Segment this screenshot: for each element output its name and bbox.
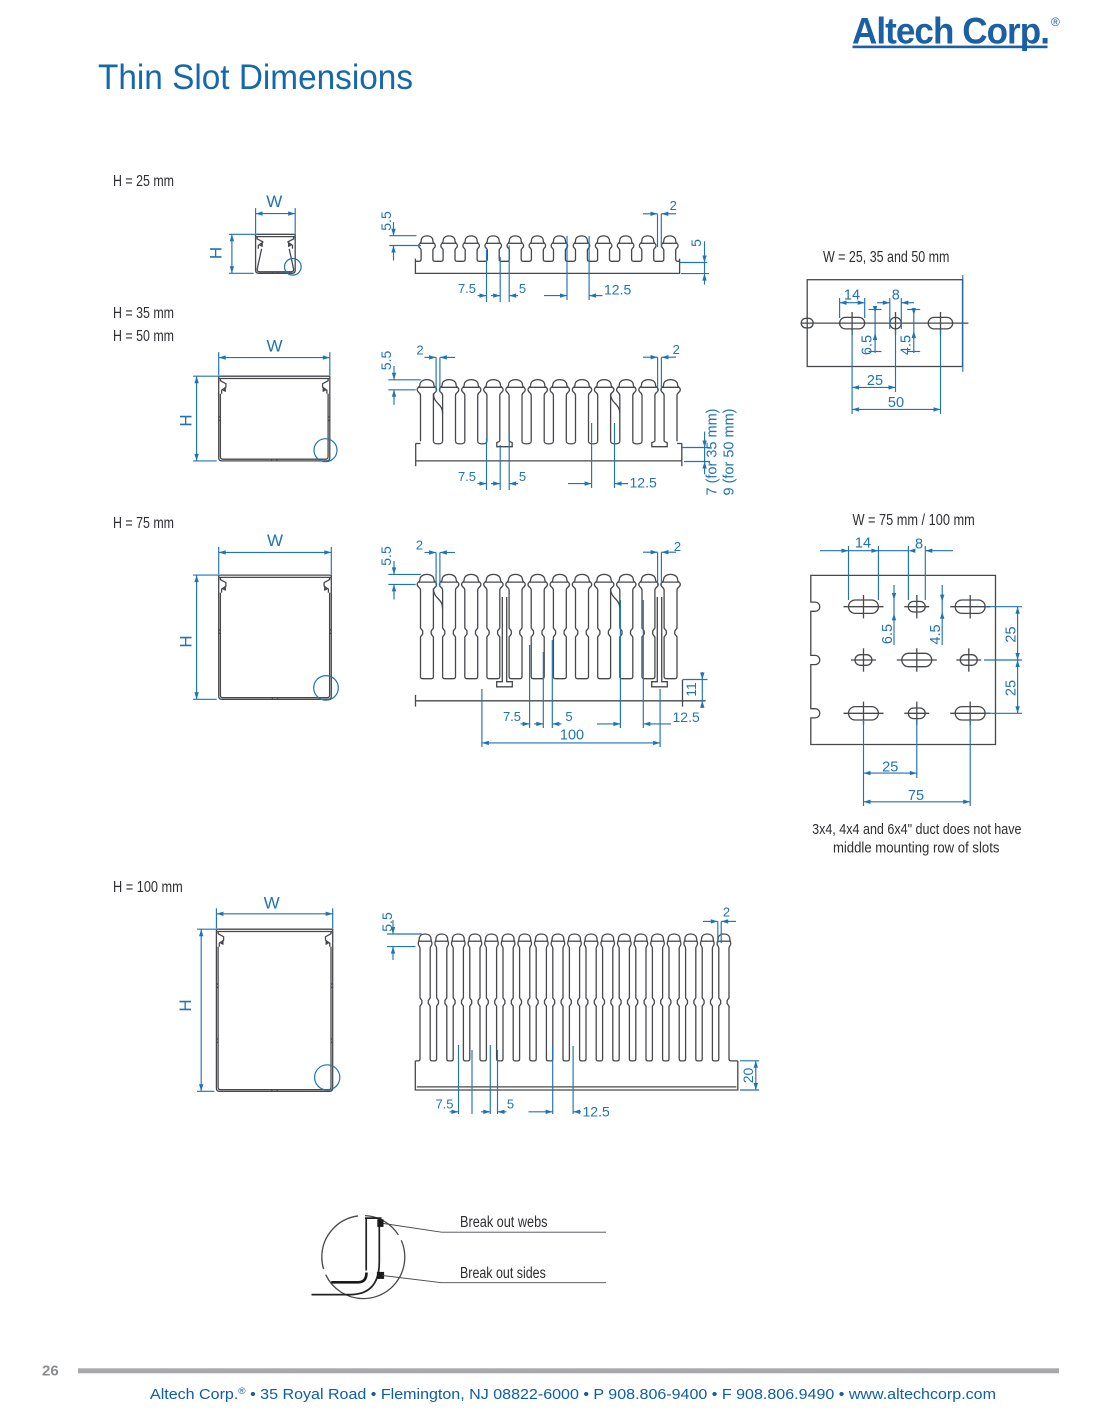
svg-text:Thin Slot Dimensions: Thin Slot Dimensions — [98, 58, 413, 97]
svg-text:12.5: 12.5 — [673, 709, 700, 725]
svg-text:8: 8 — [892, 287, 900, 303]
svg-text:2: 2 — [723, 905, 730, 920]
svg-text:H: H — [177, 414, 196, 426]
svg-text:4.5: 4.5 — [928, 624, 944, 644]
svg-text:6.5: 6.5 — [860, 335, 876, 355]
svg-text:6.5: 6.5 — [880, 624, 896, 644]
svg-text:W: W — [266, 192, 282, 211]
svg-text:2: 2 — [416, 538, 423, 553]
svg-text:12.5: 12.5 — [630, 475, 657, 491]
svg-text:Altech Corp.® • 35 Royal Road: Altech Corp.® • 35 Royal Road • Flemingt… — [150, 1386, 996, 1403]
svg-text:Altech Corp.: Altech Corp. — [852, 10, 1049, 52]
svg-text:4.5: 4.5 — [899, 335, 915, 355]
svg-text:H: H — [177, 635, 196, 647]
svg-text:2: 2 — [674, 539, 681, 554]
svg-text:W: W — [264, 894, 280, 913]
svg-text:8: 8 — [915, 537, 923, 553]
svg-text:2: 2 — [673, 342, 680, 357]
svg-text:7.5: 7.5 — [503, 709, 521, 724]
svg-text:2: 2 — [416, 343, 423, 358]
svg-text:12.5: 12.5 — [583, 1104, 610, 1120]
svg-text:7 (for 35 mm): 7 (for 35 mm) — [705, 408, 721, 495]
svg-text:5.5: 5.5 — [378, 546, 394, 566]
svg-text:14: 14 — [844, 287, 860, 303]
svg-text:7.5: 7.5 — [458, 281, 476, 296]
svg-text:20: 20 — [740, 1068, 756, 1084]
svg-text:middle mounting row of slots: middle mounting row of slots — [833, 840, 1000, 857]
svg-text:25: 25 — [1004, 680, 1020, 696]
svg-text:®: ® — [1051, 15, 1060, 29]
svg-text:5.5: 5.5 — [379, 912, 395, 932]
svg-text:3x4, 4x4 and 6x4" duct does no: 3x4, 4x4 and 6x4" duct does not have — [812, 821, 1021, 838]
svg-text:14: 14 — [855, 535, 871, 551]
svg-text:5: 5 — [519, 469, 526, 484]
svg-text:26: 26 — [42, 1363, 59, 1380]
svg-text:12.5: 12.5 — [604, 282, 631, 298]
svg-text:W: W — [267, 531, 283, 550]
svg-text:75: 75 — [908, 788, 924, 804]
svg-text:9 (for 50 mm): 9 (for 50 mm) — [722, 408, 738, 495]
svg-text:W = 75 mm / 100 mm: W = 75 mm / 100 mm — [852, 512, 974, 529]
svg-text:H = 75 mm: H = 75 mm — [113, 515, 174, 532]
svg-text:100: 100 — [560, 728, 584, 744]
svg-text:H = 100 mm: H = 100 mm — [113, 879, 183, 896]
svg-text:H: H — [176, 999, 195, 1011]
svg-text:7.5: 7.5 — [435, 1097, 453, 1112]
svg-text:5: 5 — [519, 281, 526, 296]
svg-text:5.5: 5.5 — [378, 211, 394, 231]
svg-text:25: 25 — [1004, 626, 1020, 642]
svg-text:H = 25 mm: H = 25 mm — [113, 173, 174, 190]
svg-text:H: H — [207, 247, 226, 259]
svg-text:W: W — [266, 337, 282, 356]
svg-text:H = 50 mm: H = 50 mm — [113, 328, 174, 345]
svg-text:25: 25 — [867, 373, 883, 389]
svg-text:5: 5 — [507, 1097, 514, 1112]
svg-text:5.5: 5.5 — [378, 351, 394, 371]
svg-text:W = 25, 35 and 50 mm: W = 25, 35 and 50 mm — [823, 249, 950, 266]
svg-text:H = 35 mm: H = 35 mm — [113, 305, 174, 322]
svg-text:Break out sides: Break out sides — [460, 1265, 546, 1282]
svg-text:Break out webs: Break out webs — [460, 1214, 548, 1231]
svg-text:50: 50 — [888, 395, 904, 411]
svg-text:2: 2 — [670, 198, 677, 213]
svg-text:25: 25 — [882, 760, 898, 776]
svg-text:11: 11 — [683, 682, 699, 697]
svg-text:5: 5 — [565, 709, 572, 724]
svg-text:5: 5 — [688, 239, 704, 247]
svg-text:7.5: 7.5 — [458, 469, 476, 484]
